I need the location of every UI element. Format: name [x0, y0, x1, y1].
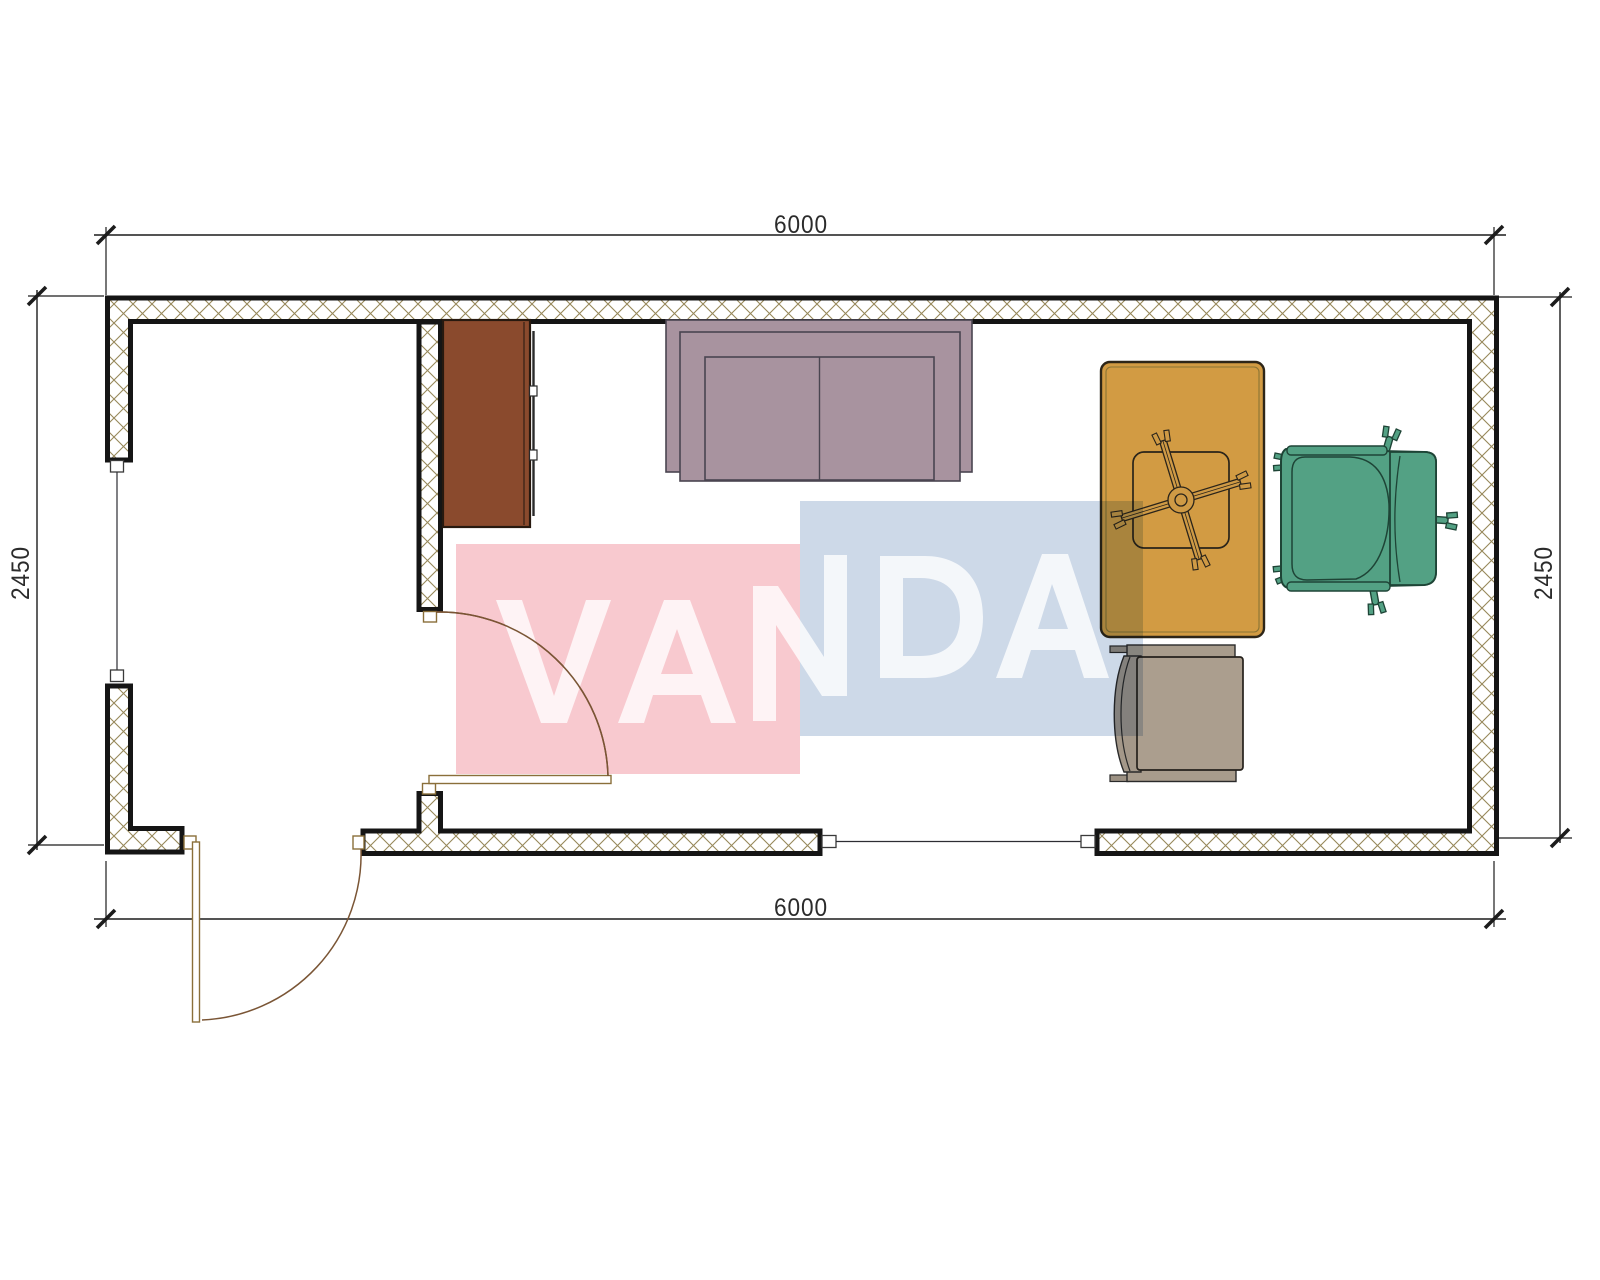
svg-text:2450: 2450 — [1530, 546, 1558, 600]
svg-text:2450: 2450 — [7, 546, 35, 600]
svg-text:6000: 6000 — [774, 211, 828, 239]
svg-text:6000: 6000 — [774, 894, 828, 922]
